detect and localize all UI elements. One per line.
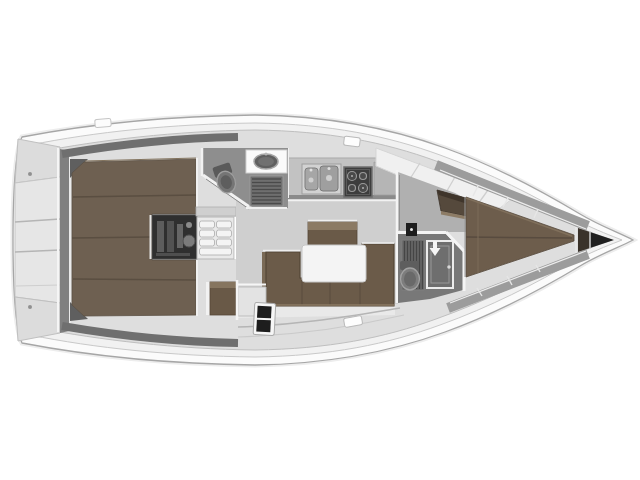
yacht-floor-plan [0, 0, 640, 480]
burner-icon [349, 185, 356, 192]
engine-detail [156, 253, 190, 256]
engine-detail [177, 224, 183, 248]
cabinet-top [210, 282, 236, 288]
aft-cabinet [206, 282, 236, 315]
step-tread [200, 221, 215, 228]
stern-mid-panels [15, 177, 60, 303]
step-tread [217, 239, 232, 246]
berth-seam [72, 237, 152, 238]
companionway-steps [196, 207, 236, 259]
step-tread [200, 239, 215, 246]
washbasin-icon [246, 150, 287, 173]
door-handle-icon [447, 265, 451, 269]
chainplate-fitting [253, 302, 276, 335]
faucet-icon [265, 153, 268, 156]
berth-seam [466, 237, 572, 238]
stove-icon [344, 167, 372, 197]
stern-lockers [15, 139, 70, 341]
toerail-gate [95, 118, 112, 127]
faucet-icon [328, 167, 331, 170]
toilet-icon [400, 261, 420, 290]
step-tread [217, 230, 232, 237]
engine-compartment [151, 215, 198, 259]
step-tread [200, 230, 215, 237]
drain-icon [326, 175, 332, 181]
cabinet-trim [206, 282, 210, 315]
engine-detail [157, 221, 164, 252]
stern-corner-panel-top [15, 139, 60, 183]
engine-detail [167, 221, 174, 252]
faucet-icon [310, 169, 313, 172]
salon-table [302, 245, 366, 282]
engine-pulley-icon [183, 235, 195, 247]
deck-fitting-icon [28, 305, 32, 309]
berth-seam [73, 279, 196, 280]
floor-plan-canvas [0, 0, 640, 480]
latch-dot [410, 228, 413, 231]
burner-dot [362, 187, 364, 189]
toerail-gate [343, 136, 360, 147]
burner-icon [360, 173, 367, 180]
transom-wall [60, 149, 69, 333]
step-tread [200, 248, 232, 255]
shower-grate-icon [250, 176, 283, 206]
drain-icon [309, 178, 314, 183]
deck-fitting-icon [28, 172, 32, 176]
companionway-hatch [196, 207, 236, 216]
salon-sideboard [308, 221, 357, 249]
step-tread [217, 221, 232, 228]
galley-sink-icon [302, 164, 341, 194]
engine-detail [186, 222, 192, 228]
burner-dot [351, 175, 353, 177]
stern-corner-panel-bottom [15, 297, 60, 341]
